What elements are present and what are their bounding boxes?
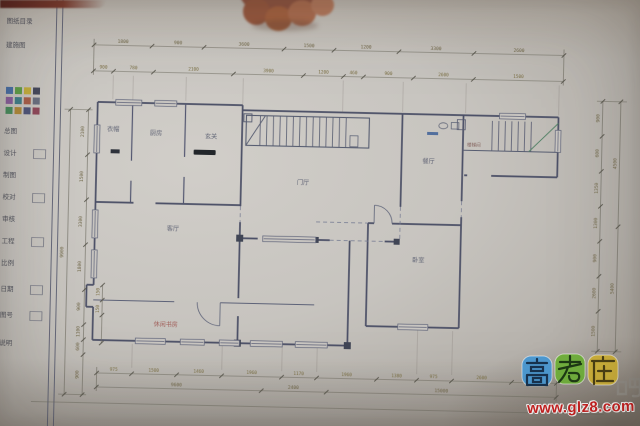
dim-label: 4500 [612, 158, 618, 169]
title-block-row: 制图 [3, 170, 16, 179]
dim-label: 1960 [246, 370, 257, 376]
dim-label: 1100 [75, 326, 81, 337]
dim-label: 1500 [591, 325, 597, 336]
title-block-row: 比例 [1, 258, 14, 267]
title-block-row: 总图 [4, 126, 17, 135]
title-block-border-lines [47, 0, 64, 426]
room-label-cloakroom: 衣帽 [107, 125, 120, 133]
legend-cell [24, 97, 31, 104]
stair-outline [246, 115, 370, 148]
legend-cell [15, 97, 22, 104]
room-label-foyer: 门厅 [297, 178, 310, 186]
dim-label: 780 [129, 65, 137, 71]
stair-landing-box [350, 136, 358, 147]
dim-label: 900 [100, 64, 108, 70]
stair-main [243, 114, 369, 148]
title-block: 图纸目录 建施图 总图 设计 制图 校对 审核 工程 比例 日期 图号 说明 [0, 0, 64, 426]
dim-label: 15000 [434, 388, 448, 394]
legend-cell [32, 107, 39, 114]
finger-shadow [252, 20, 318, 31]
dim-label: 2600 [591, 287, 597, 298]
dim-label: 1460 [193, 369, 204, 375]
dim-label: 2100 [188, 66, 199, 72]
dim-label: 600 [595, 149, 601, 158]
dim-label: 900 [74, 370, 80, 379]
pillar-squares [234, 235, 400, 351]
legend-cell [24, 87, 31, 94]
title-block-row: 审核 [2, 214, 16, 223]
dim-label: 1500 [148, 368, 159, 374]
legend-cell [5, 107, 12, 114]
legend-cell [23, 107, 30, 114]
plan-walls [85, 102, 558, 354]
dim-label: 1380 [391, 373, 402, 379]
title-block-stamp-boxes [30, 149, 46, 320]
dim-label: 600 [75, 342, 81, 351]
room-label-dining: 餐厅 [422, 157, 435, 165]
dim-label: 3900 [263, 68, 274, 74]
watermark-url: www.glz8.com [520, 398, 640, 418]
dim-label: 2600 [476, 375, 487, 381]
floorplan-photo: 图纸目录 建施图 总图 设计 制图 校对 审核 工程 比例 日期 图号 说明 [0, 0, 640, 426]
stair-treads [492, 121, 532, 152]
dim-label: 900 [595, 114, 601, 123]
legend-cell [15, 87, 22, 94]
toilet-fixture [439, 123, 448, 129]
stair-treads [260, 116, 346, 148]
room-label-bedroom: 卧室 [412, 256, 425, 264]
title-block-row: 工程 [1, 236, 15, 245]
thin-divider [93, 300, 314, 305]
small-fixture [111, 149, 120, 153]
stair-break-line [246, 115, 266, 145]
outer-walls [85, 102, 558, 351]
dim-label: 900 [592, 254, 598, 263]
dim-label: 150 [95, 305, 101, 313]
room-label-kitchen: 厨房 [150, 129, 163, 137]
dim-label: 460 [349, 70, 357, 76]
watermark-char-ba [618, 379, 640, 396]
title-block-legend [5, 87, 40, 115]
plan-fixtures [111, 115, 459, 161]
watermark: 高老庄 吧 www.glz8.com [520, 350, 640, 426]
dim-label: 1500 [79, 171, 85, 182]
door-arcs [197, 201, 393, 329]
dim-label: 900 [384, 71, 392, 77]
dim-label: 150 [95, 288, 101, 296]
legend-cell [33, 87, 40, 94]
legend-cell [33, 97, 40, 104]
dim-label: 975 [110, 367, 118, 373]
dim-label: 1960 [341, 372, 352, 378]
finger-knuckle [311, 0, 334, 16]
dim-label: 1350 [594, 182, 600, 193]
dim-label: 1800 [77, 261, 83, 272]
dim-label: 1170 [293, 371, 304, 377]
dim-label: 1300 [593, 217, 599, 228]
dim-label: 9600 [171, 382, 182, 388]
room-label-stair-hall: 楼梯间 [467, 141, 481, 148]
room-label-entry: 玄关 [205, 132, 218, 140]
dim-label: 9900 [59, 246, 65, 257]
stair-diagonal-line [529, 123, 559, 153]
blue-tag-mark [427, 132, 438, 135]
dim-label: 975 [430, 374, 438, 380]
dim-label: 1500 [513, 74, 524, 80]
room-label-study: 休闲书房 [154, 320, 178, 329]
stair-rail-line [463, 150, 558, 152]
dim-label: 3300 [78, 216, 84, 227]
legend-cell [6, 87, 13, 94]
title-block-row: 说明 [0, 338, 13, 347]
dim-label: 5400 [610, 283, 616, 294]
dim-label: 900 [76, 302, 82, 311]
title-block-row: 设计 [3, 148, 17, 157]
legend-cell [14, 107, 21, 114]
dim-label: 2100 [80, 126, 86, 137]
title-block-row: 校对 [2, 192, 16, 201]
room-label-living: 客厅 [167, 225, 180, 233]
partition-walls [130, 103, 185, 204]
finger [0, 0, 640, 60]
legend-cell [6, 97, 13, 104]
dim-label: 1200 [318, 69, 329, 75]
title-block-row: 日期 [0, 285, 14, 293]
title-block-row: 图号 [0, 311, 13, 319]
window-mullions [92, 102, 558, 350]
dim-label: 2600 [438, 72, 449, 78]
dim-label: 2400 [288, 385, 299, 391]
counter-fixture [194, 150, 216, 155]
watermark-logo [520, 350, 640, 402]
